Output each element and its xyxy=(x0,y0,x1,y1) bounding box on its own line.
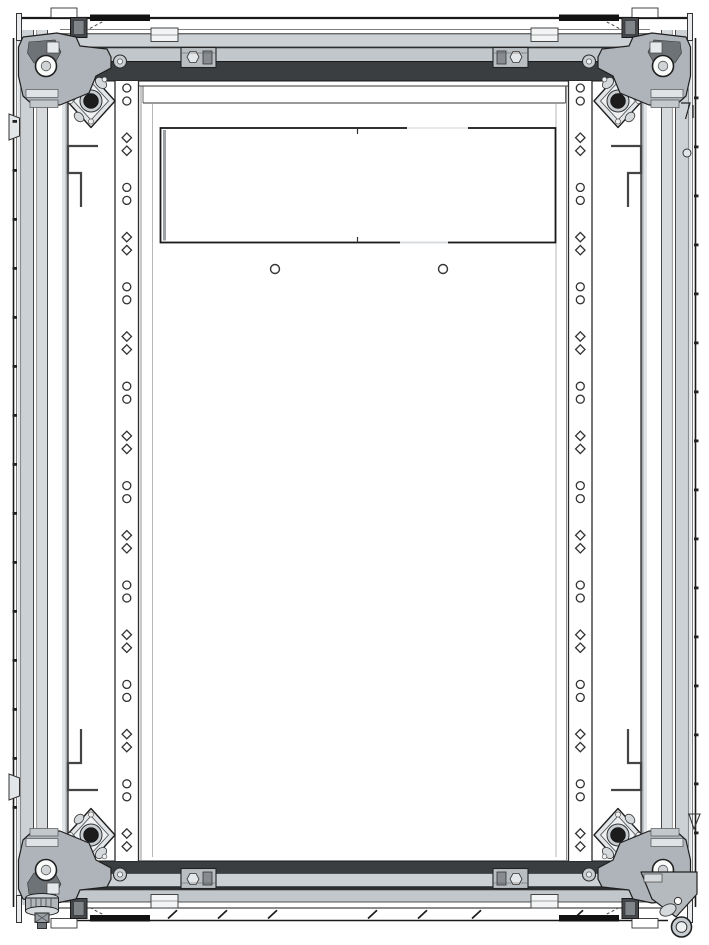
panel-mount-hole xyxy=(439,265,448,274)
rail-hole-round xyxy=(576,594,584,602)
top-extrusion-band xyxy=(55,34,654,47)
edge-nub-left xyxy=(13,806,18,809)
rail-hole-round xyxy=(576,680,584,688)
rail-hole-round xyxy=(123,296,131,304)
edge-nub-left xyxy=(13,267,18,270)
edge-nub-right xyxy=(694,783,699,786)
rail-hole-round xyxy=(123,395,131,403)
rail-hole-round xyxy=(576,793,584,801)
rail-hole-round xyxy=(123,84,131,92)
bottom-extrusion-band xyxy=(55,874,654,887)
edge-nub-right xyxy=(694,342,699,345)
technical-drawing-canvas xyxy=(0,0,709,945)
rail-hole-round xyxy=(123,283,131,291)
rail-hole-round xyxy=(576,196,584,204)
edge-nub-right xyxy=(694,391,699,394)
rail-hole-round xyxy=(123,793,131,801)
bottom-charcoal-band xyxy=(68,861,641,874)
bottom-extrusion-band xyxy=(55,890,654,902)
edge-nub-right xyxy=(694,538,699,541)
edge-nub-right xyxy=(694,440,699,443)
edge-nub-left xyxy=(13,316,18,319)
rail-hole-round xyxy=(123,183,131,191)
rail-hole-round xyxy=(123,495,131,503)
edge-nub-left xyxy=(13,708,18,711)
edge-nub-right xyxy=(694,587,699,590)
edge-nub-right xyxy=(694,97,699,100)
edge-nub-left xyxy=(13,659,18,662)
rail-hole-round xyxy=(576,84,584,92)
rail-hole-round xyxy=(123,680,131,688)
mounting-rail-right xyxy=(569,81,593,861)
right-edge-hinge-knob xyxy=(683,149,691,157)
panel-mount-hole xyxy=(271,265,280,274)
panel-cutout xyxy=(161,128,556,243)
edge-nub-left xyxy=(13,463,18,466)
edge-nub-right xyxy=(694,636,699,639)
rail-hole-round xyxy=(576,382,584,390)
edge-nub-right xyxy=(694,734,699,737)
edge-nub-left xyxy=(13,414,18,417)
rail-hole-round xyxy=(576,581,584,589)
edge-nub-left xyxy=(13,757,18,760)
left-edge-clip-top xyxy=(9,114,20,140)
rail-hole-round xyxy=(576,482,584,490)
rack-frame-drawing xyxy=(0,0,709,945)
mounting-rail-left xyxy=(115,81,139,861)
edge-nub-left xyxy=(13,512,18,515)
rail-hole-round xyxy=(576,780,584,788)
edge-nub-right xyxy=(694,146,699,149)
top-charcoal-band xyxy=(68,62,641,82)
rail-hole-round xyxy=(123,780,131,788)
edge-nub-right xyxy=(694,293,699,296)
edge-nub-right xyxy=(694,832,699,835)
left-edge-clip-bottom xyxy=(9,774,20,800)
edge-nub-left xyxy=(13,610,18,613)
bottom-seam-dark xyxy=(55,887,654,891)
edge-nub-left xyxy=(13,169,18,172)
top-extrusion-band xyxy=(55,48,654,62)
rail-hole-round xyxy=(576,97,584,105)
rail-hole-round xyxy=(576,283,584,291)
edge-nub-right xyxy=(694,685,699,688)
rail-hole-round xyxy=(123,693,131,701)
rail-hole-round xyxy=(576,183,584,191)
edge-nub-left xyxy=(13,218,18,221)
rail-hole-round xyxy=(576,395,584,403)
edge-nub-right xyxy=(694,244,699,247)
rail-hole-round xyxy=(576,296,584,304)
rail-hole-round xyxy=(576,693,584,701)
edge-nub-left xyxy=(13,561,18,564)
rail-hole-round xyxy=(123,581,131,589)
rail-hole-round xyxy=(576,495,584,503)
rail-hole-round xyxy=(123,382,131,390)
edge-nub-right xyxy=(694,489,699,492)
rail-hole-round xyxy=(123,482,131,490)
edge-nub-left xyxy=(13,365,18,368)
rail-hole-round xyxy=(123,97,131,105)
rail-hole-round xyxy=(123,196,131,204)
edge-nub-left xyxy=(13,120,18,123)
edge-nub-right xyxy=(694,195,699,198)
rail-hole-round xyxy=(123,594,131,602)
